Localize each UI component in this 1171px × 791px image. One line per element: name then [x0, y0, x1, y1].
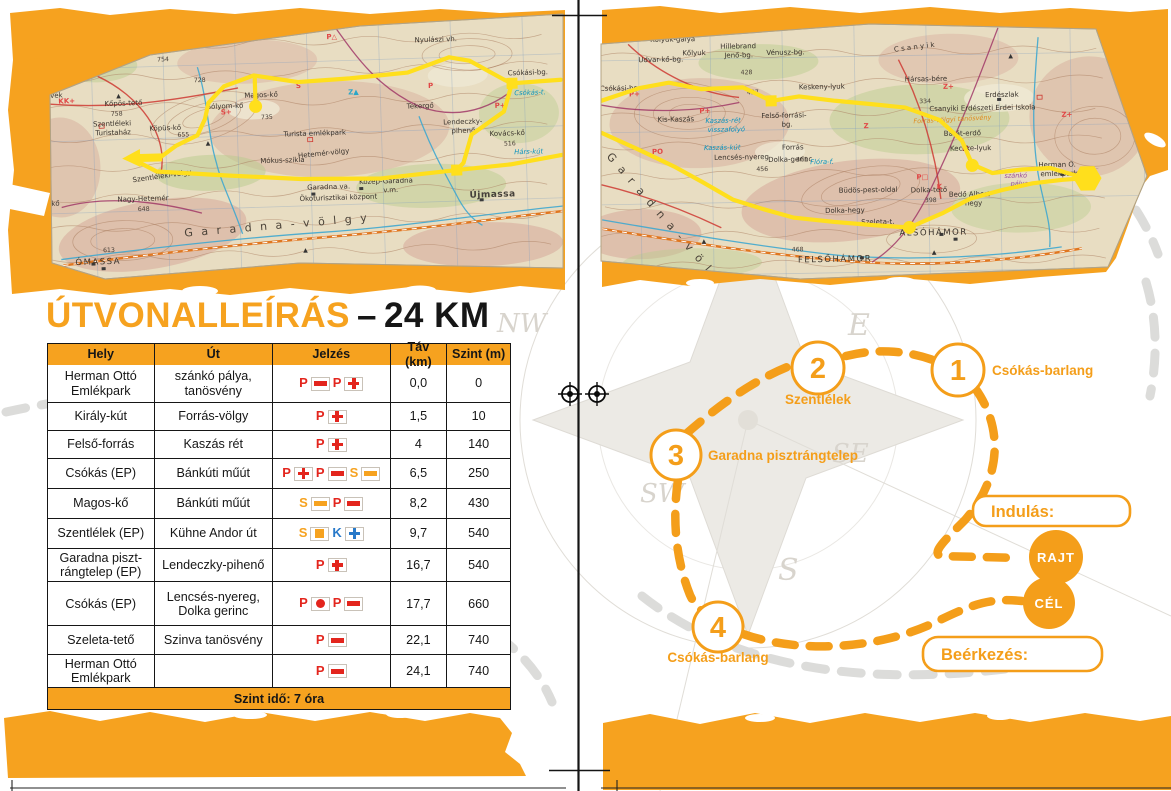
table-row: Magos-kőBánkúti műútSP8,2430 [48, 488, 510, 518]
table-row: Herman Ottó EmlékparkP24,1740 [48, 654, 510, 687]
map-label: 461 [796, 156, 808, 163]
map-label: v.m. [383, 186, 398, 194]
col-header-jelzes: Jelzés [272, 344, 389, 365]
cell-hely: Csókás (EP) [48, 459, 154, 488]
stop-label-4: Csókás-barlang [667, 650, 768, 665]
cell-tav: 6,5 [390, 459, 447, 488]
trail-symbol-cross-icon [345, 527, 364, 541]
map-label: Büdös-pest-oldal [839, 186, 898, 195]
compass-letter-e: E [847, 308, 870, 343]
cell-szint: 140 [446, 431, 510, 458]
cell-hely: Felső-forrás [48, 431, 154, 458]
map-label: Udvar-kő-bg. [638, 54, 683, 64]
cell-szint: 740 [446, 626, 510, 654]
title-separator: – [357, 296, 377, 335]
trail-letter: P [316, 558, 325, 573]
map-label: visszafolyó [708, 125, 745, 134]
trail-symbol-bar-icon [328, 633, 347, 647]
cell-szint: 0 [446, 365, 510, 402]
cell-ut: Szinva tanösvény [154, 626, 272, 654]
table-row: Herman Ottó Emlékparkszánkó pálya, tanös… [48, 365, 510, 402]
map-label: 428 [741, 69, 753, 76]
map-label: Kovács-kő [489, 128, 525, 138]
map-label: Kaszás-kút [704, 143, 741, 152]
trail-letter: S [299, 526, 308, 541]
trail-symbol-square-icon [310, 527, 329, 541]
cell-ut [154, 655, 272, 687]
table-row: Garadna piszt-rángtelep (EP)Lendeczky-pi… [48, 548, 510, 581]
cell-tav: 0,0 [390, 365, 447, 402]
map-label: Kaszás-rét [705, 116, 741, 125]
map-label: 735 [261, 114, 273, 121]
map-label: 398 [925, 197, 937, 204]
cell-hely: Szentlélek (EP) [48, 519, 154, 548]
map-label: S+ [221, 108, 232, 116]
trail-letter: P [316, 437, 325, 452]
table-row: Csókás (EP)Lencsés-nyereg, Dolka gerincP… [48, 581, 510, 625]
cell-jelzes: P [272, 626, 389, 654]
cell-hely: Magos-kő [48, 489, 154, 518]
route-table: Hely Út Jelzés Táv (km) Szint (m) Herman… [47, 343, 511, 710]
col-header-ut: Út [154, 344, 272, 365]
cell-tav: 22,1 [390, 626, 447, 654]
map-label: Csókás-t. [514, 88, 546, 97]
cell-jelzes: SK [272, 519, 389, 548]
map-label: Nagy-Hetemér [117, 194, 168, 204]
map-label: Csókási-bg. [508, 68, 549, 77]
map-label: Magos-kő [244, 90, 278, 100]
map-label: Hársas-bére [905, 75, 947, 84]
stop-number-2: 2 [810, 353, 826, 385]
route-square-marker [506, 78, 517, 89]
cell-jelzes: P [272, 549, 389, 581]
map-label: Kecske-lyuk [950, 144, 992, 153]
start-badge-label: RAJT [1037, 550, 1075, 565]
cell-ut: szánkó pálya, tanösvény [154, 365, 272, 402]
compass-letter-s: S [778, 553, 799, 588]
table-header-row: Hely Út Jelzés Táv (km) Szint (m) [48, 344, 510, 365]
cell-hely: Király-kút [48, 403, 154, 430]
cell-ut: Bánkúti műút [154, 489, 272, 518]
map-label: Hárs-kút [514, 147, 544, 156]
trail-letter: K [332, 526, 341, 541]
cell-ut: Forrás-völgy [154, 403, 272, 430]
stop-label-1: Csókás-barlang [992, 363, 1093, 378]
map-label: Turistaház [94, 128, 131, 137]
start-box-label: Indulás: [991, 503, 1054, 521]
cell-jelzes: P [272, 655, 389, 687]
trail-letter: P [333, 496, 342, 511]
map-label: Z▲ [348, 88, 359, 96]
trail-symbol-bar-icon [344, 597, 363, 611]
cell-szint: 540 [446, 549, 510, 581]
table-row: Csókás (EP)Bánkúti műútPPS6,5250 [48, 458, 510, 488]
cell-hely: Garadna piszt-rángtelep (EP) [48, 549, 154, 581]
finish-box-label: Beérkezés: [941, 646, 1028, 664]
trail-symbol-bar-icon [328, 467, 347, 481]
col-header-szint: Szint (m) [446, 344, 510, 365]
table-row: Király-kútForrás-völgyP1,510 [48, 402, 510, 430]
trail-symbol-cross-icon [294, 467, 313, 481]
cell-hely: Csókás (EP) [48, 582, 154, 625]
map-label: Z+ [1061, 111, 1072, 119]
col-header-tav: Táv (km) [390, 344, 447, 365]
cell-szint: 540 [446, 519, 510, 548]
trail-symbol-cross-icon [344, 377, 363, 391]
cell-szint: 430 [446, 489, 510, 518]
trail-letter: P [299, 376, 308, 391]
map-label: Forrás [782, 143, 804, 151]
table-footer: Szint idő: 7 óra [48, 687, 510, 709]
cell-hely: Szeleta-tető [48, 626, 154, 654]
stop-number-1: 1 [950, 355, 966, 387]
trail-letter: S [350, 466, 359, 481]
trail-letter: P [316, 409, 325, 424]
cell-szint: 10 [446, 403, 510, 430]
map-label: Jenő-bg. [723, 50, 753, 60]
map-label: Kőlyuk [682, 48, 707, 57]
map-label: P□ [916, 173, 928, 181]
table-body: Herman Ottó Emlékparkszánkó pálya, tanös… [48, 365, 510, 687]
map-label: 758 [111, 111, 123, 118]
trail-letter: P [316, 633, 325, 648]
map-label: Garadna va. [307, 182, 350, 191]
trail-letter: P [316, 664, 325, 679]
map-label: 728 [194, 77, 206, 84]
map-label: 754 [157, 56, 169, 63]
trail-letter: P [282, 466, 291, 481]
stop-number-4: 4 [710, 612, 726, 644]
map-label: Flóra-f. [810, 158, 834, 166]
trail-symbol-bar-icon [311, 377, 330, 391]
map-label: 648 [138, 206, 150, 213]
route-square-marker [766, 95, 777, 106]
stop-label-2: Szentlélek [785, 392, 852, 407]
map-label: 456 [756, 166, 768, 173]
cell-jelzes: PP [272, 582, 389, 625]
cell-jelzes: SP [272, 489, 389, 518]
topo-map-right: Kőlyuk-galyaKőlyukHillebrandJenő-bg.Vénu… [578, 19, 1153, 301]
map-label: Kis-Kaszás [657, 115, 694, 124]
finish-badge-label: CÉL [1035, 596, 1064, 611]
stop-label-3: Garadna pisztrángtelep [708, 448, 858, 463]
map-label: Lencsés-nyereg [714, 153, 769, 162]
cell-hely: Herman Ottó Emlékpark [48, 655, 154, 687]
map-label: 613 [103, 247, 115, 254]
map-label: Vénusz-bg. [766, 48, 805, 57]
map-label: ▲ [702, 238, 707, 245]
cell-tav: 4 [390, 431, 447, 458]
booklet-spread: NW E SE SW S [0, 0, 1171, 791]
col-header-hely: Hely [48, 344, 154, 365]
trail-symbol-bar-icon [361, 467, 380, 481]
map-label: ▲ [116, 93, 121, 100]
map-label: P+ [699, 107, 710, 115]
cell-tav: 9,7 [390, 519, 447, 548]
trail-letter: P [333, 376, 342, 391]
cell-ut: Lendeczky-pihenő [154, 549, 272, 581]
cell-ut: Bánkúti műút [154, 459, 272, 488]
title-distance: 24 KM [384, 296, 490, 335]
cell-ut: Lencsés-nyereg, Dolka gerinc [154, 582, 272, 625]
diagram-path-1-start [938, 388, 1020, 558]
table-row: Szentlélek (EP)Kühne Andor útSK9,7540 [48, 518, 510, 548]
cell-jelzes: P [272, 431, 389, 458]
map-label: P [428, 82, 433, 90]
map-label: ▲ [303, 247, 308, 254]
map-label: Felső-forrási- [761, 110, 807, 120]
map-label: 516 [504, 140, 516, 147]
table-row: Szeleta-tetőSzinva tanösvényP22,1740 [48, 625, 510, 654]
map-label: Lendeczky- [443, 117, 483, 126]
trail-letter: P [333, 596, 342, 611]
trail-letter: S [299, 496, 308, 511]
map-label: ▲ [206, 140, 211, 147]
map-label: Keskeny-lyuk [799, 83, 846, 92]
stop-number-3: 3 [668, 440, 684, 472]
trail-symbol-dot-icon [311, 597, 330, 611]
band-bottom-right [603, 713, 1171, 790]
map-label: P△ [326, 33, 337, 41]
cell-ut: Kühne Andor út [154, 519, 272, 548]
map-label: K [937, 183, 943, 191]
cell-tav: 1,5 [390, 403, 447, 430]
cell-tav: 17,7 [390, 582, 447, 625]
cell-szint: 660 [446, 582, 510, 625]
trail-symbol-cross-icon [328, 438, 347, 452]
trail-symbol-cross-icon [328, 558, 347, 572]
map-label: Z [864, 122, 869, 130]
map-label: KK+ [58, 97, 75, 106]
trail-letter: P [316, 466, 325, 481]
band-bottom-left [4, 711, 526, 778]
cell-ut: Kaszás rét [154, 431, 272, 458]
compass-letter-nw: NW [496, 309, 549, 339]
cell-jelzes: P [272, 403, 389, 430]
map-label: Hillebrand [720, 42, 756, 51]
map-label: 468 [792, 246, 804, 253]
trail-symbol-cross-icon [328, 410, 347, 424]
map-label: ▲ [1008, 53, 1013, 60]
map-label: Szentléleki [93, 119, 131, 128]
map-label: ▲ [932, 249, 937, 256]
route-square-marker [451, 164, 462, 175]
cell-tav: 24,1 [390, 655, 447, 687]
cell-jelzes: PPS [272, 459, 389, 488]
map-label: Kőpös-tető [104, 98, 142, 108]
cell-jelzes: PP [272, 365, 389, 402]
cell-szint: 250 [446, 459, 510, 488]
cell-tav: 8,2 [390, 489, 447, 518]
trail-letter: P [299, 596, 308, 611]
map-label: Erdészlak [985, 91, 1020, 100]
trail-symbol-bar-icon [344, 497, 363, 511]
map-label: Z+ [943, 83, 954, 91]
map-label: Tekergő [406, 101, 434, 111]
page-title: ÚTVONALLEÍRÁS–24 KM [46, 296, 490, 336]
map-label: bg. [781, 121, 792, 129]
cell-tav: 16,7 [390, 549, 447, 581]
map-label: Dolka-hegy [825, 206, 865, 215]
table-row: Felső-forrásKaszás rétP4140 [48, 430, 510, 458]
diagram-path-2-1 [846, 351, 933, 360]
trail-symbol-bar-icon [328, 664, 347, 678]
map-label: Nyulászi vh. [414, 35, 457, 44]
trail-symbol-bar-icon [311, 497, 330, 511]
cell-hely: Herman Ottó Emlékpark [48, 365, 154, 402]
cell-szint: 740 [446, 655, 510, 687]
title-main: ÚTVONALLEÍRÁS [46, 296, 350, 335]
